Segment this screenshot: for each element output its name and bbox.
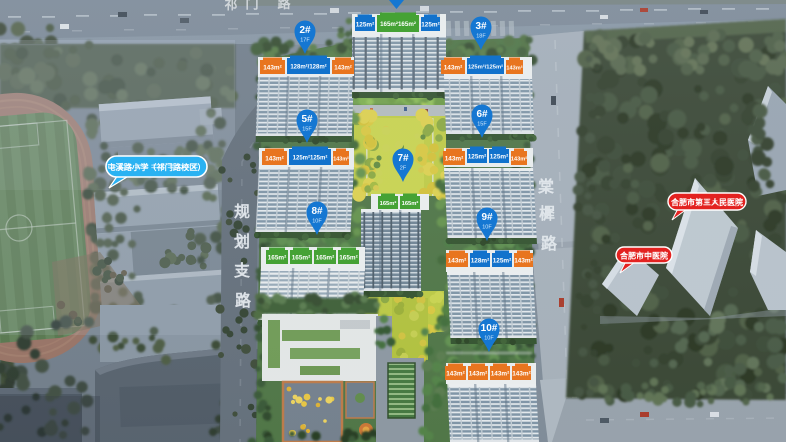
svg-text:143m²: 143m²: [514, 257, 532, 264]
svg-text:143m²: 143m²: [469, 370, 487, 377]
svg-text:143m²: 143m²: [446, 370, 464, 377]
svg-text:165m²165m²: 165m²165m²: [380, 21, 416, 28]
svg-text:6#: 6#: [476, 109, 488, 120]
svg-text:7#: 7#: [397, 153, 409, 164]
svg-text:3#: 3#: [475, 21, 487, 32]
svg-text:15F: 15F: [477, 122, 487, 128]
svg-text:17F: 17F: [300, 38, 310, 44]
svg-text:15F: 15F: [302, 127, 312, 133]
svg-text:合肥市中医院: 合肥市中医院: [619, 251, 668, 261]
svg-text:165m²: 165m²: [339, 254, 357, 261]
svg-text:屯溪路小学（祁门路校区）: 屯溪路小学（祁门路校区）: [107, 162, 205, 172]
svg-text:125m²: 125m²: [490, 153, 508, 160]
svg-text:路: 路: [277, 0, 291, 11]
svg-text:10F: 10F: [312, 219, 322, 225]
svg-text:165m²: 165m²: [380, 200, 397, 207]
svg-text:125m²: 125m²: [468, 153, 486, 160]
svg-text:125m²/125m²: 125m²/125m²: [468, 63, 503, 70]
svg-text:2#: 2#: [299, 25, 311, 36]
svg-text:143m²: 143m²: [506, 64, 522, 71]
svg-text:165m²: 165m²: [316, 254, 334, 261]
svg-text:165m²: 165m²: [268, 254, 286, 261]
svg-text:125m²: 125m²: [493, 257, 511, 264]
svg-text:18F: 18F: [476, 34, 486, 40]
svg-text:143m²: 143m²: [265, 155, 283, 162]
svg-text:143m²: 143m²: [512, 370, 530, 377]
svg-text:8#: 8#: [311, 206, 323, 217]
svg-text:128m²: 128m²: [471, 257, 489, 264]
svg-text:143m²: 143m²: [445, 155, 463, 162]
svg-text:125m²: 125m²: [356, 21, 374, 28]
svg-text:9#: 9#: [481, 212, 493, 223]
svg-text:10F: 10F: [484, 336, 494, 342]
svg-text:143m²: 143m²: [444, 64, 462, 71]
svg-text:143m²: 143m²: [263, 64, 281, 71]
svg-text:门: 门: [245, 0, 258, 12]
svg-text:128m²/128m²: 128m²/128m²: [290, 63, 326, 70]
svg-text:10F: 10F: [482, 225, 492, 231]
svg-text:祁: 祁: [224, 0, 237, 12]
svg-text:10#: 10#: [481, 323, 498, 334]
svg-text:165m²: 165m²: [402, 200, 419, 207]
svg-text:143m²: 143m²: [511, 155, 527, 162]
svg-text:143m²: 143m²: [491, 370, 509, 377]
svg-text:125m²: 125m²: [421, 21, 439, 28]
svg-text:143m²: 143m²: [333, 156, 349, 162]
svg-text:165m²: 165m²: [292, 254, 310, 261]
svg-text:143m²: 143m²: [448, 257, 466, 264]
svg-text:5#: 5#: [301, 114, 313, 125]
svg-text:2F: 2F: [400, 166, 407, 172]
svg-text:143m²: 143m²: [334, 64, 352, 71]
svg-text:125m²125m²: 125m²125m²: [293, 154, 328, 161]
